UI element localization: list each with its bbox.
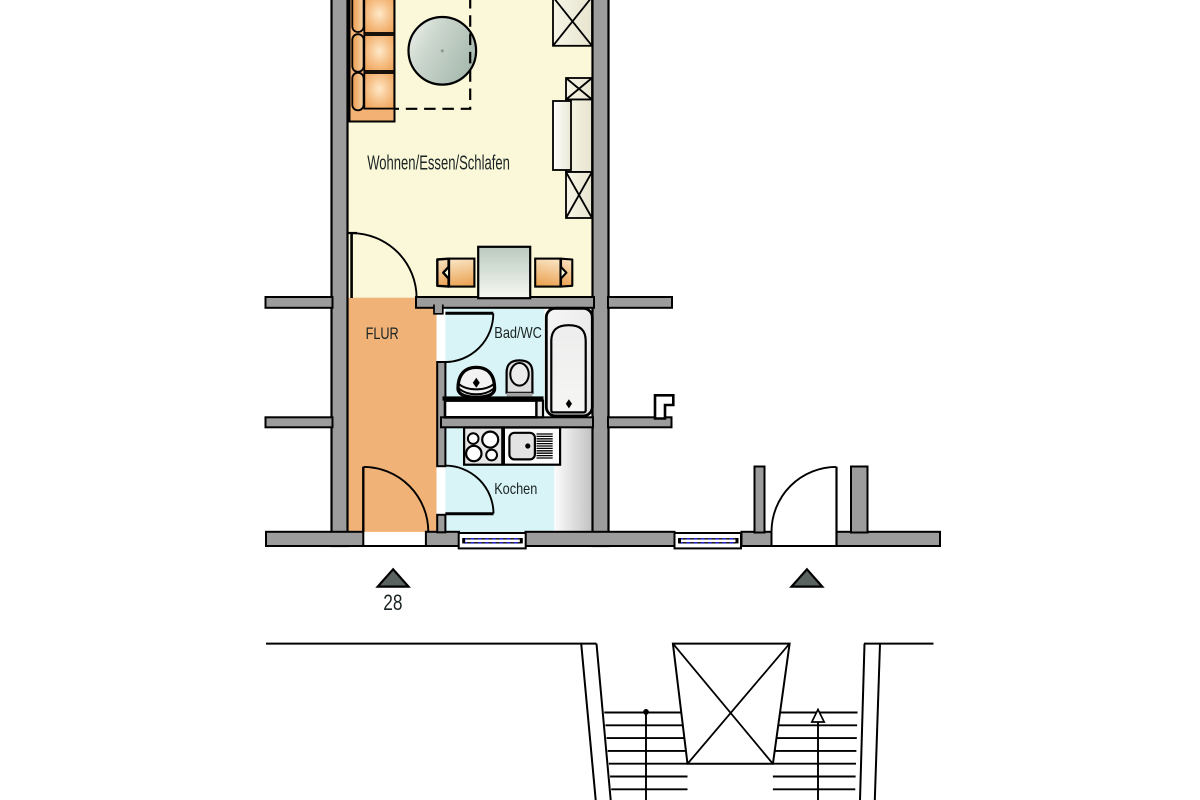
svg-text:Kochen: Kochen — [494, 481, 537, 499]
svg-text:FLUR: FLUR — [366, 325, 399, 343]
svg-text:Wohnen/Essen/Schlafen: Wohnen/Essen/Schlafen — [367, 152, 510, 174]
svg-text:Bad/WC: Bad/WC — [494, 325, 542, 343]
svg-text:28: 28 — [383, 591, 402, 615]
